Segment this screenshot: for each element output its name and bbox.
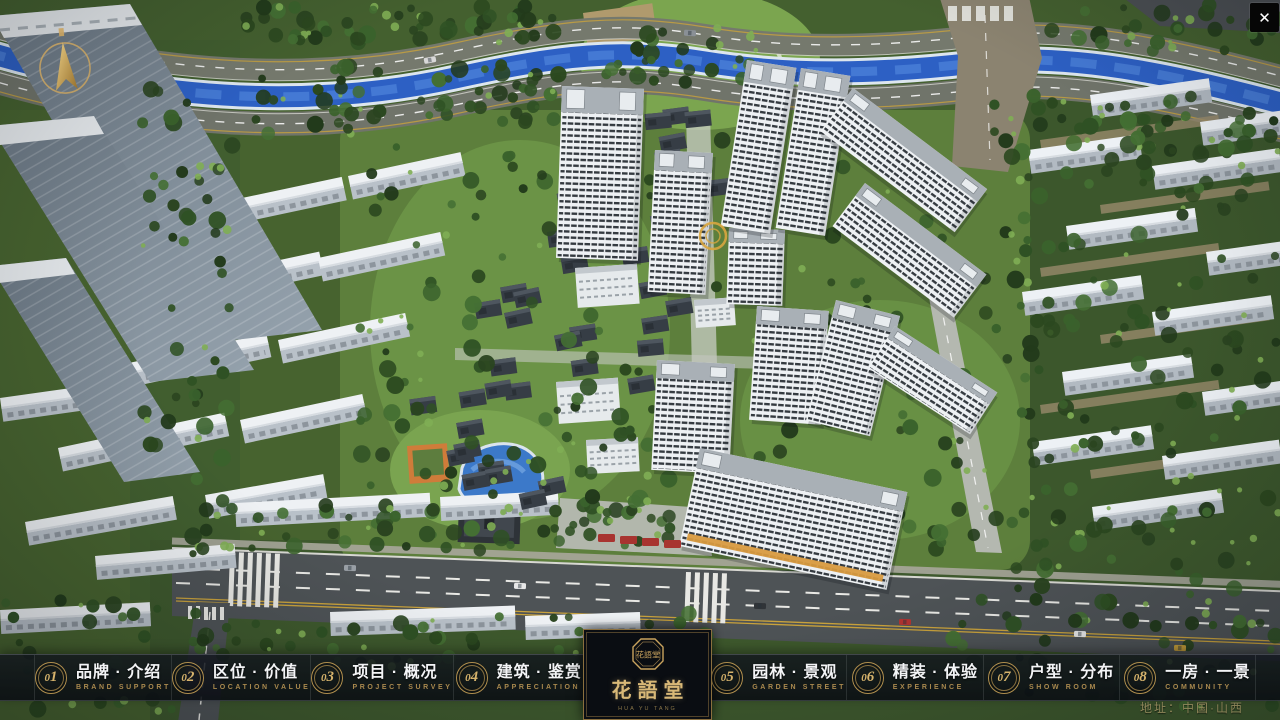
nav-label: 精装 · 体验 [893, 664, 978, 682]
nav-item-project-survey[interactable]: 03 项目 · 概况 PROJECT SURVEY [310, 655, 452, 700]
nav-sublabel: EXPERIENCE [893, 684, 964, 691]
number-badge: 02 [172, 662, 204, 694]
item-number: 08 [1134, 670, 1147, 685]
nav-sublabel: BRAND SUPPORT [76, 684, 171, 691]
nav-sublabel: SHOW ROOM [1029, 684, 1098, 691]
project-name-caption: HUA YU TANG [618, 706, 677, 712]
number-badge: 07 [988, 662, 1020, 694]
nav-sublabel: GARDEN STREET [752, 684, 846, 691]
nav-label: 建筑 · 鉴赏 [497, 664, 582, 682]
nav-item-location-value[interactable]: 02 区位 · 价值 LOCATION VALUE [171, 655, 311, 700]
nav-label: 园林 · 景观 [752, 664, 837, 682]
project-name: 花語堂 [606, 674, 690, 703]
nav-item-brand-intro[interactable]: 01 品牌 · 介绍 BRAND SUPPORT [35, 655, 171, 700]
number-badge: 08 [1124, 662, 1156, 694]
nav-group-right: 05 园林 · 景观 GARDEN STREET 06 精装 · 体验 EXPE… [710, 655, 1256, 700]
close-button[interactable]: ✕ [1250, 3, 1279, 32]
number-badge: 01 [35, 662, 67, 694]
nav-item-room-view[interactable]: 08 一房 · 一景 COMMUNITY [1119, 655, 1255, 700]
project-logo: 花語堂 花語堂 HUA YU TANG [583, 629, 712, 720]
number-badge: 04 [456, 662, 488, 694]
app-window: ✕ 01 品牌 · 介绍 BRAND SUPPORT 02 区位 · 价值 LO… [0, 0, 1280, 720]
nav-item-garden-landscape[interactable]: 05 园林 · 景观 GARDEN STREET [710, 655, 846, 700]
nav-group-left: 01 品牌 · 介绍 BRAND SUPPORT 02 区位 · 价值 LOCA… [34, 655, 584, 700]
item-number: 07 [998, 670, 1011, 685]
nav-label: 品牌 · 介绍 [76, 664, 161, 682]
nav-sublabel: COMMUNITY [1165, 684, 1232, 691]
nav-item-architecture[interactable]: 04 建筑 · 鉴赏 APPRECIATION [453, 655, 584, 700]
item-number: 01 [45, 670, 58, 685]
masterplan-3d-view[interactable] [0, 0, 1280, 720]
nav-label: 项目 · 概况 [352, 664, 437, 682]
nav-sublabel: PROJECT SURVEY [352, 684, 452, 691]
logo-seal-icon: 花語堂 [631, 637, 665, 671]
nav-label: 一房 · 一景 [1165, 664, 1250, 682]
nav-item-decoration-experience[interactable]: 06 精装 · 体验 EXPERIENCE [846, 655, 982, 700]
item-number: 04 [465, 670, 478, 685]
nav-sublabel: LOCATION VALUE [213, 684, 311, 691]
item-number: 02 [181, 670, 194, 685]
nav-label: 区位 · 价值 [213, 664, 298, 682]
number-badge: 03 [311, 662, 343, 694]
item-number: 06 [861, 670, 874, 685]
close-icon: ✕ [1258, 9, 1271, 27]
compass-north-icon [34, 26, 96, 100]
seal-text: 花語堂 [636, 650, 660, 660]
item-number: 03 [321, 670, 334, 685]
project-address: 地址：中国·山西 [1140, 699, 1244, 716]
nav-sublabel: APPRECIATION [497, 684, 581, 691]
item-number: 05 [721, 670, 734, 685]
number-badge: 06 [852, 662, 884, 694]
nav-item-unit-distribution[interactable]: 07 户型 · 分布 SHOW ROOM [983, 655, 1119, 700]
number-badge: 05 [711, 662, 743, 694]
nav-label: 户型 · 分布 [1029, 664, 1114, 682]
